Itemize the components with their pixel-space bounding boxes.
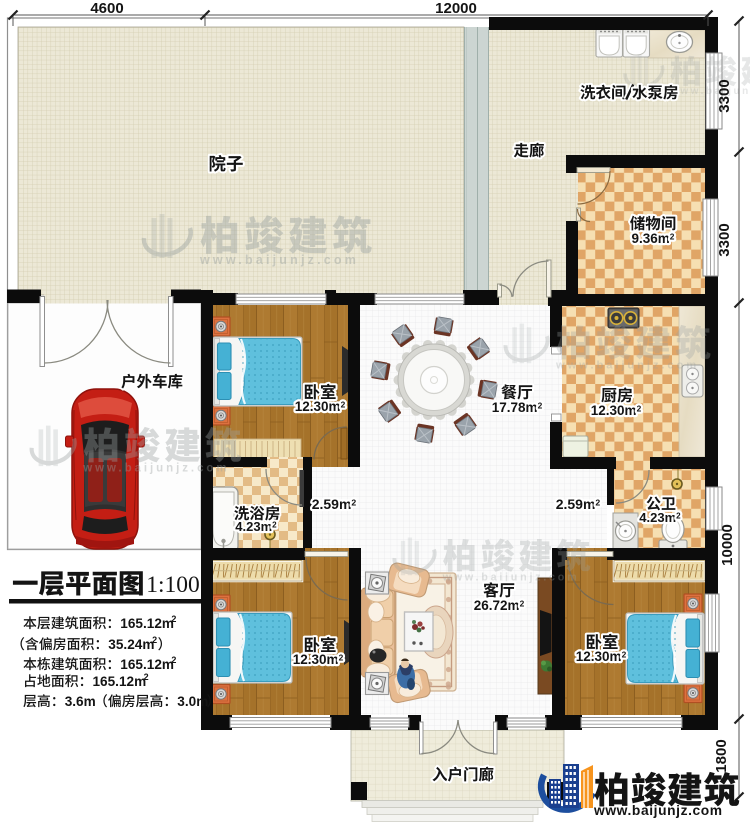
svg-text:12.30m2: 12.30m2 bbox=[576, 649, 627, 664]
svg-text:12.30m2: 12.30m2 bbox=[591, 403, 642, 418]
svg-text:4600: 4600 bbox=[90, 0, 123, 17]
svg-text:9.36m2: 9.36m2 bbox=[632, 231, 675, 246]
svg-text:35.24m: 35.24m bbox=[108, 637, 154, 652]
svg-text:3300: 3300 bbox=[716, 79, 733, 112]
svg-text:3.0m: 3.0m bbox=[177, 694, 208, 709]
svg-text:10000: 10000 bbox=[719, 524, 736, 566]
svg-text:26.72m2: 26.72m2 bbox=[474, 598, 525, 613]
svg-text:2: 2 bbox=[144, 672, 149, 682]
svg-text:1800: 1800 bbox=[713, 739, 730, 772]
svg-text:17.78m2: 17.78m2 bbox=[492, 400, 543, 415]
svg-text:3.6m: 3.6m bbox=[65, 694, 96, 709]
svg-text:2: 2 bbox=[152, 635, 157, 645]
svg-text:2: 2 bbox=[171, 655, 176, 665]
svg-text:2.59m2: 2.59m2 bbox=[312, 496, 357, 512]
svg-text:www.baijunjz.com: www.baijunjz.com bbox=[593, 803, 723, 818]
svg-text:2.59m2: 2.59m2 bbox=[556, 496, 601, 512]
svg-text:4.23m2: 4.23m2 bbox=[639, 510, 681, 525]
svg-text:12.30m2: 12.30m2 bbox=[293, 652, 344, 667]
svg-text:165.12m: 165.12m bbox=[120, 616, 174, 631]
svg-text:12000: 12000 bbox=[435, 0, 477, 17]
svg-text:3300: 3300 bbox=[716, 223, 733, 256]
svg-text:2: 2 bbox=[171, 614, 176, 624]
svg-text:4.23m2: 4.23m2 bbox=[235, 519, 277, 534]
svg-text:12.30m2: 12.30m2 bbox=[295, 399, 346, 414]
svg-text:165.12m: 165.12m bbox=[93, 674, 147, 689]
svg-text:165.12m: 165.12m bbox=[120, 657, 174, 672]
svg-text:1:100: 1:100 bbox=[146, 572, 200, 598]
